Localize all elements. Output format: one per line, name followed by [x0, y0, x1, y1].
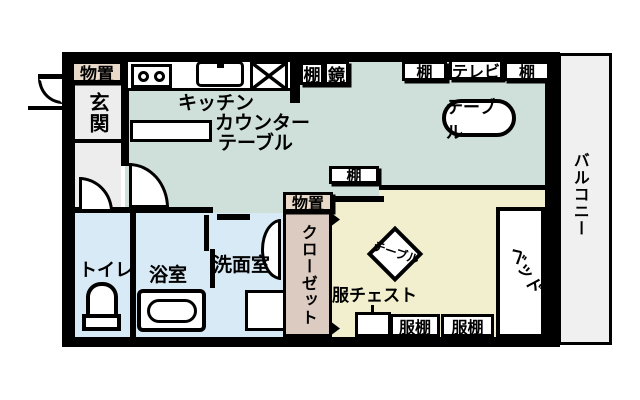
- shelf-b-label: 棚: [416, 59, 432, 83]
- balcony-label: バルコニー: [570, 152, 587, 237]
- shelf-box-a: 棚: [300, 62, 324, 85]
- wall-entrance-line: [75, 139, 121, 143]
- storage-box-mid: 物置: [283, 192, 333, 212]
- wall-bottom: [62, 337, 560, 347]
- storage-box-top: 物置: [71, 61, 123, 83]
- counter-table: [130, 120, 212, 142]
- washstand-icon: [245, 290, 286, 331]
- toilet-bowl-icon: [86, 282, 118, 318]
- slide-door-bath-a: [204, 215, 209, 251]
- tv-box: テレビ: [449, 59, 503, 80]
- burner-icon: [154, 71, 165, 82]
- wall-partition-living-bedroom: [379, 185, 545, 190]
- floorplan: バルコニー キッチン カウンター テーブル 物置 棚 鏡 棚 テレビ: [0, 0, 640, 400]
- mirror-label: 鏡: [328, 61, 345, 86]
- washroom-label: 洗面室: [213, 256, 270, 276]
- kitchen-label-line3: テーブル: [218, 134, 310, 154]
- mirror-box: 鏡: [324, 61, 349, 85]
- clothes-chest: [355, 312, 391, 337]
- clothes-chest-label: 服チェスト: [332, 287, 417, 305]
- shelf-box-b: 棚: [402, 61, 447, 81]
- faucet-icon: [217, 61, 224, 68]
- slide-door-washroom: [217, 214, 250, 220]
- kitchen-label-line2: カウンター: [215, 114, 310, 134]
- shelf-box-mid: 棚: [329, 166, 379, 184]
- bathroom-label: 浴室: [149, 266, 187, 286]
- toilet-base-icon: [82, 314, 121, 331]
- wall-right: [545, 52, 560, 347]
- tv-label: テレビ: [452, 58, 500, 82]
- closet-label: クローゼット: [298, 224, 315, 326]
- shelf-box-c: 棚: [504, 61, 550, 81]
- kitchen-label-line1: キッチン: [178, 94, 310, 114]
- slide-door-bedroom: [332, 196, 384, 202]
- entrance-door-arc-icon: [38, 78, 63, 104]
- entrance-label: 玄関: [86, 92, 107, 134]
- clothes-shelf-1-label: 服棚: [399, 314, 431, 338]
- clothes-shelf-2-label: 服棚: [451, 314, 483, 338]
- storage-mid-label: 物置: [292, 190, 324, 214]
- toilet-label: トイレ: [79, 261, 133, 280]
- burner-icon: [138, 71, 149, 82]
- living-table-label: テーブル: [446, 93, 512, 143]
- shelf-c-label: 棚: [519, 59, 535, 83]
- stove-icon: [131, 64, 172, 88]
- laundry-space-icon: [250, 61, 288, 91]
- entrance-step-line: [28, 106, 62, 110]
- bathtub-inner-icon: [147, 299, 197, 323]
- clothes-shelf-2: 服棚: [441, 314, 494, 337]
- living-table: テーブル: [442, 99, 516, 137]
- shelf-mid-label: 棚: [346, 165, 361, 186]
- wall-left: [62, 52, 75, 347]
- storage-top-label: 物置: [80, 60, 114, 85]
- shelf-a-label: 棚: [304, 61, 321, 86]
- clothes-shelf-1: 服棚: [390, 314, 440, 337]
